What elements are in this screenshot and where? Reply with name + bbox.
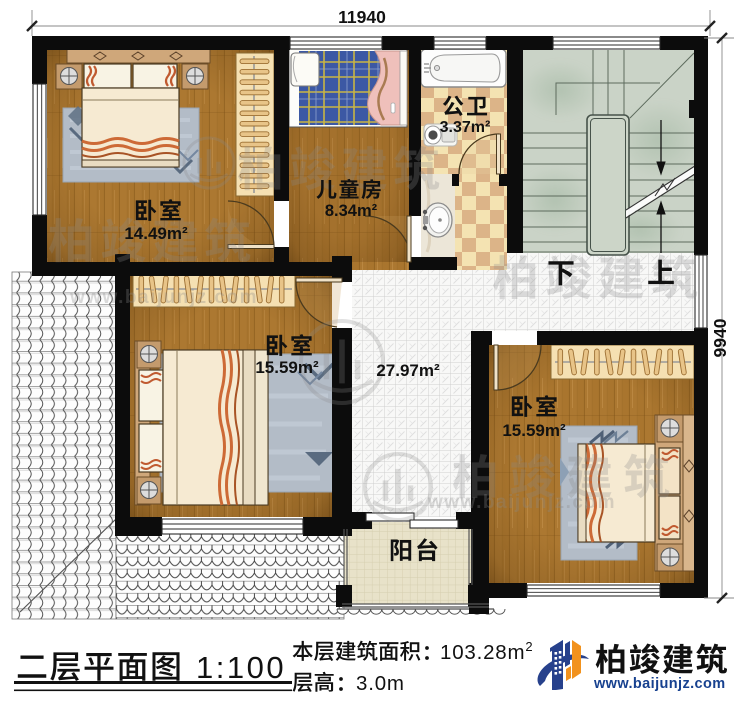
svg-text:：: ： <box>336 673 356 695</box>
svg-text:8.34m²: 8.34m² <box>325 202 378 220</box>
svg-text:11940: 11940 <box>338 7 386 27</box>
svg-text:3.0m: 3.0m <box>356 672 405 695</box>
svg-text:27.97m²: 27.97m² <box>376 361 440 380</box>
svg-text:www.baijunjz.com: www.baijunjz.com <box>69 287 258 308</box>
svg-text:15.59m²: 15.59m² <box>502 421 566 440</box>
svg-text:3.37m²: 3.37m² <box>440 119 491 136</box>
svg-text:9940: 9940 <box>710 318 730 357</box>
svg-text:www.baijunjz.com: www.baijunjz.com <box>593 676 726 692</box>
svg-text:www.baijunjz.com: www.baijunjz.com <box>427 492 616 513</box>
svg-text:14.49m²: 14.49m² <box>124 224 188 243</box>
svg-text:103.28m2: 103.28m2 <box>440 639 533 664</box>
svg-text:1:100: 1:100 <box>196 650 286 685</box>
svg-text:15.59m²: 15.59m² <box>255 358 319 377</box>
svg-text:：: ： <box>422 642 442 664</box>
